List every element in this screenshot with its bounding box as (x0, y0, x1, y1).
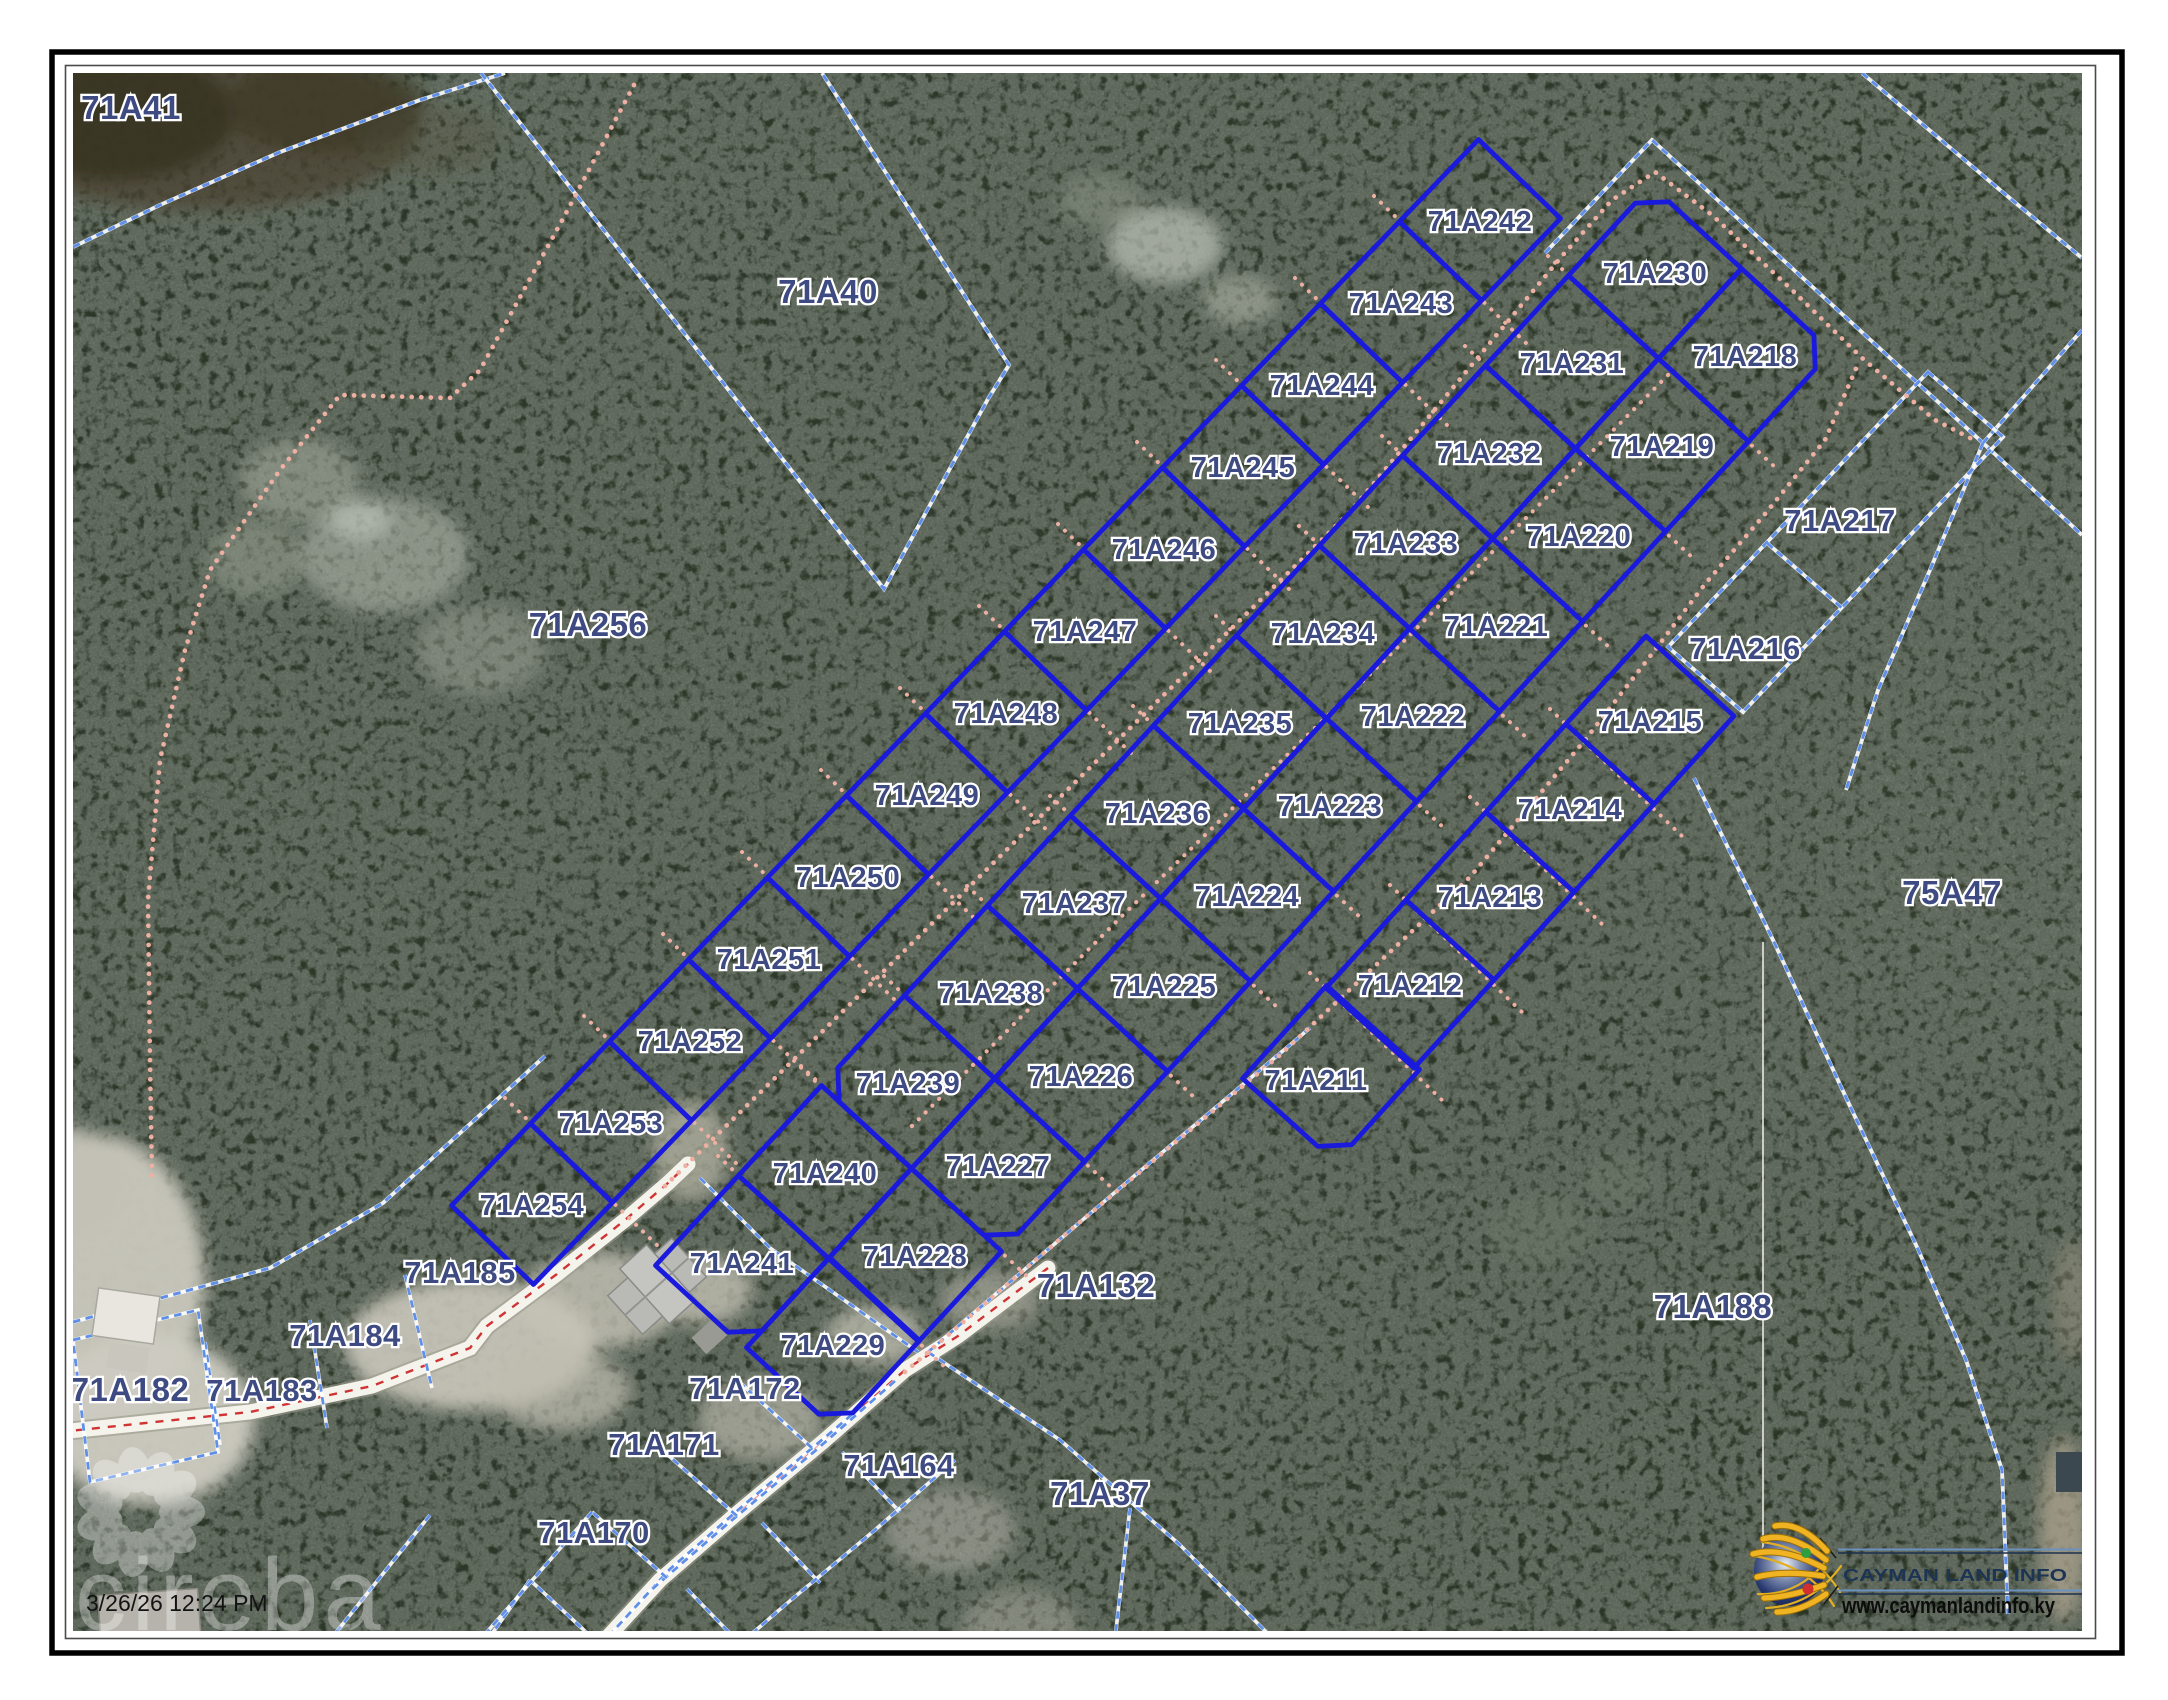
svg-text:71A254: 71A254 (480, 1190, 585, 1222)
svg-text:71A235: 71A235 (1188, 708, 1293, 740)
svg-text:71A223: 71A223 (1278, 791, 1383, 823)
svg-text:71A218: 71A218 (1693, 341, 1798, 373)
svg-text:75A47: 75A47 (1902, 874, 2002, 911)
svg-text:71A212: 71A212 (1358, 970, 1463, 1002)
svg-text:71A225: 71A225 (1112, 971, 1217, 1003)
svg-text:71A222: 71A222 (1361, 701, 1466, 733)
svg-text:71A41: 71A41 (81, 89, 181, 126)
svg-text:71A215: 71A215 (1598, 706, 1703, 738)
svg-text:71A234: 71A234 (1271, 618, 1376, 650)
svg-text:71A219: 71A219 (1610, 431, 1715, 463)
svg-text:71A240: 71A240 (773, 1158, 878, 1190)
svg-text:71A188: 71A188 (1654, 1288, 1773, 1325)
svg-text:71A213: 71A213 (1438, 882, 1543, 914)
svg-text:71A211: 71A211 (1265, 1065, 1368, 1097)
svg-text:71A252: 71A252 (638, 1026, 743, 1058)
svg-text:71A228: 71A228 (863, 1241, 968, 1273)
svg-text:71A40: 71A40 (778, 273, 878, 310)
svg-text:71A214: 71A214 (1518, 794, 1623, 826)
svg-text:71A232: 71A232 (1437, 438, 1542, 470)
svg-text:71A170: 71A170 (538, 1515, 650, 1550)
svg-text:71A171: 71A171 (608, 1427, 720, 1462)
svg-text:71A230: 71A230 (1603, 258, 1708, 290)
svg-text:71A172: 71A172 (689, 1371, 801, 1406)
svg-text:71A221: 71A221 (1444, 611, 1549, 643)
svg-text:71A250: 71A250 (796, 862, 901, 894)
svg-text:71A237: 71A237 (1022, 888, 1127, 920)
svg-text:71A251: 71A251 (717, 944, 822, 976)
svg-text:71A239: 71A239 (856, 1068, 961, 1100)
svg-text:71A247: 71A247 (1033, 616, 1138, 648)
svg-text:71A164: 71A164 (843, 1448, 955, 1483)
svg-text:71A229: 71A229 (781, 1330, 886, 1362)
svg-text:71A244: 71A244 (1270, 370, 1375, 402)
svg-text:www.caymanlandinfo.ky: www.caymanlandinfo.ky (1841, 1593, 2055, 1618)
svg-text:71A233: 71A233 (1354, 528, 1459, 560)
svg-text:71A242: 71A242 (1428, 206, 1533, 238)
svg-text:71A37: 71A37 (1050, 1475, 1150, 1512)
svg-text:71A256: 71A256 (529, 606, 648, 643)
svg-text:71A246: 71A246 (1112, 534, 1217, 566)
svg-text:71A248: 71A248 (954, 698, 1059, 730)
svg-text:71A182: 71A182 (71, 1371, 190, 1408)
svg-text:71A241: 71A241 (690, 1248, 795, 1280)
svg-text:71A253: 71A253 (559, 1108, 664, 1140)
svg-text:71A236: 71A236 (1105, 798, 1210, 830)
svg-text:71A132: 71A132 (1037, 1267, 1156, 1304)
svg-text:71A249: 71A249 (875, 780, 980, 812)
svg-text:71A238: 71A238 (939, 978, 1044, 1010)
svg-text:71A226: 71A226 (1029, 1061, 1134, 1093)
svg-text:CAYMAN LAND INFO: CAYMAN LAND INFO (1843, 1565, 2067, 1585)
svg-text:71A245: 71A245 (1191, 452, 1296, 484)
svg-text:71A216: 71A216 (1689, 631, 1801, 666)
svg-text:71A224: 71A224 (1195, 881, 1300, 913)
svg-text:71A243: 71A243 (1349, 288, 1454, 320)
svg-text:71A185: 71A185 (404, 1255, 516, 1290)
svg-text:3/26/26 12:24 PM: 3/26/26 12:24 PM (86, 1590, 268, 1616)
svg-text:71A227: 71A227 (946, 1151, 1051, 1183)
svg-text:71A184: 71A184 (289, 1318, 401, 1353)
svg-text:71A231: 71A231 (1520, 348, 1625, 380)
svg-text:71A220: 71A220 (1527, 521, 1632, 553)
svg-text:71A217: 71A217 (1784, 503, 1896, 538)
svg-text:71A183: 71A183 (206, 1373, 318, 1408)
